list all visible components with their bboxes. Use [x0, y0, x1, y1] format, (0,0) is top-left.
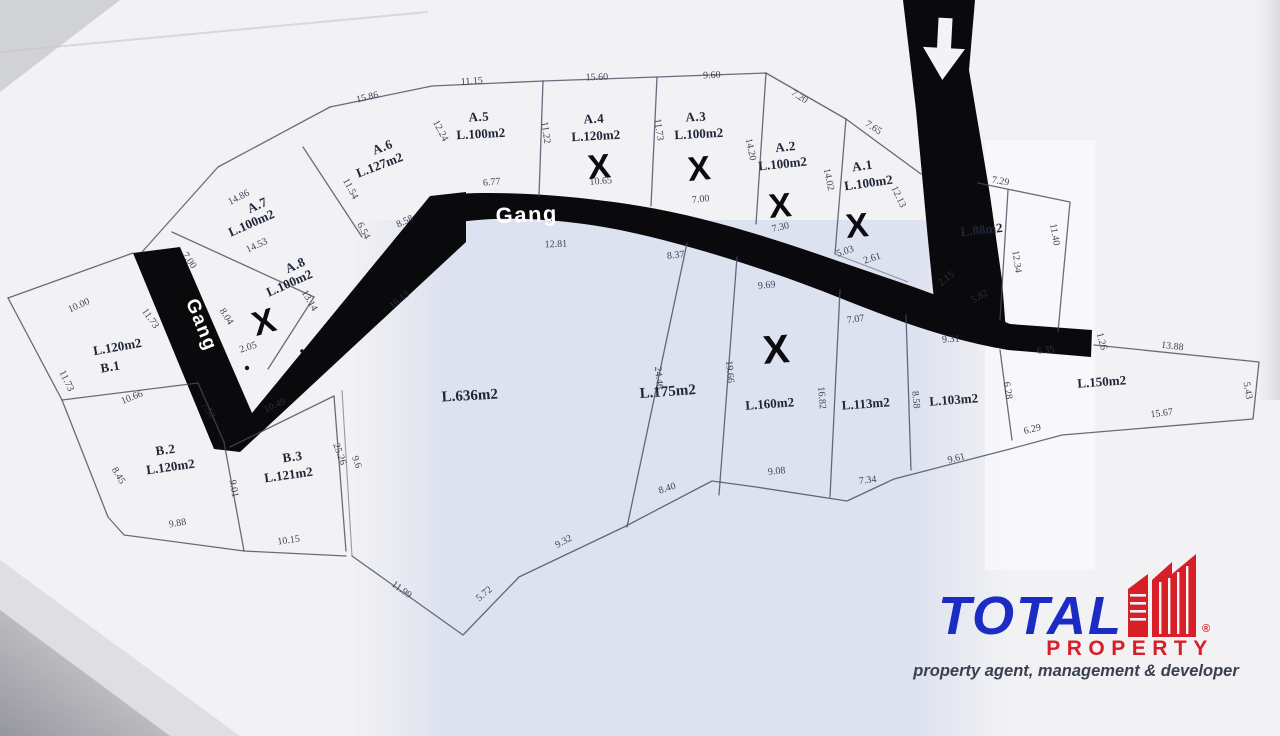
- dimension-label: 7.34: [858, 474, 877, 487]
- plot-name: A.3: [685, 108, 706, 124]
- dimension-label: 19.66: [723, 360, 736, 383]
- site-plan-map: 15.86 11.15 15.60 9.60 7.20 7.65 7.29 11…: [0, 0, 1280, 736]
- dimension-label: 12.81: [544, 239, 567, 251]
- road-label-gang-main: Gang: [495, 201, 558, 228]
- dimension-label: 6.77: [482, 176, 501, 189]
- dimension-label: 11.15: [460, 75, 483, 88]
- dimension-label: 9.69: [757, 279, 776, 292]
- dimension-label: 9.31: [942, 333, 960, 345]
- x-mark: X: [586, 147, 612, 187]
- dimension-label: 15.60: [585, 72, 608, 84]
- plot-area: L.636m2: [441, 387, 498, 406]
- logo-registered-mark: ®: [1202, 623, 1210, 635]
- dimension-label: 8.58: [909, 391, 921, 409]
- x-mark: X: [761, 327, 791, 373]
- logo-tagline: property agent, management & developer: [912, 662, 1240, 680]
- plot-name: B.2: [154, 441, 176, 459]
- plot-area: L.100m2: [674, 125, 723, 143]
- plot-name: A.2: [774, 138, 796, 155]
- plot-name: A.5: [468, 108, 489, 124]
- dimension-label: 16.82: [815, 386, 828, 409]
- paper-edge-right: [1256, 0, 1280, 400]
- logo-brand2-text: PROPERTY: [1046, 637, 1214, 660]
- x-mark: X: [767, 186, 793, 226]
- plot-name: B.3: [281, 448, 303, 466]
- plot-area: L.120m2: [571, 127, 620, 145]
- dimension-label: 7.00: [691, 193, 710, 206]
- plot-name: A.1: [851, 157, 874, 175]
- plot-name: A.4: [583, 110, 604, 126]
- dimension-label: 6.35: [1036, 344, 1055, 357]
- scanned-site-plan: 15.86 11.15 15.60 9.60 7.20 7.65 7.29 11…: [0, 0, 1280, 736]
- plot-area: L.100m2: [456, 125, 505, 143]
- dimension-label: 9.60: [703, 70, 721, 82]
- dimension-label: 9.08: [767, 465, 786, 478]
- x-mark: X: [686, 149, 712, 189]
- x-mark: X: [844, 206, 870, 246]
- dimension-label: 8.37: [666, 249, 685, 262]
